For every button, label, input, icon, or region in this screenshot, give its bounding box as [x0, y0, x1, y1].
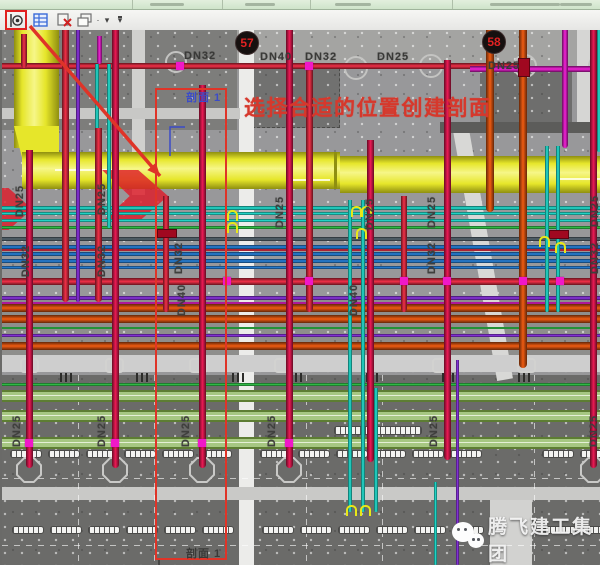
pipe-junction-dot — [443, 277, 451, 285]
grid-dash-vertical — [306, 375, 307, 565]
beam-band — [2, 355, 600, 372]
pipe-size-label: DN32 — [305, 51, 337, 63]
pipe-size-label: DN25 — [274, 190, 286, 234]
hatch-capsule-symbol — [374, 450, 406, 458]
close-hidden-windows-icon[interactable] — [56, 12, 74, 28]
pipe-horizontal-blue — [2, 259, 600, 263]
pipe-horizontal-orange — [2, 304, 600, 312]
pipe-size-label: DN25 — [266, 409, 278, 453]
hatch-capsule-symbol — [12, 526, 44, 534]
pipe-horizontal-violet — [2, 334, 600, 337]
pipe-junction-dot — [400, 277, 408, 285]
valve-symbol — [227, 222, 238, 233]
ribbon-label-blur — [560, 3, 592, 6]
valve-symbol — [555, 242, 566, 253]
ribbon-divider — [452, 0, 453, 9]
ribbon-label-blur — [245, 3, 275, 6]
pipe-junction-dot — [176, 62, 184, 70]
instruction-text: 选择合适的位置创建剖面 — [244, 92, 492, 122]
pipe-vertical-magenta — [562, 30, 568, 148]
pipe-vertical-cyan — [374, 388, 378, 512]
pipe-size-label: DN32 — [426, 236, 438, 280]
insulated-pipe-band — [2, 410, 600, 422]
pipe-vertical-cyan — [556, 146, 560, 312]
pipe-size-label: DN40 — [260, 51, 292, 63]
ribbon-label-blur — [335, 3, 371, 6]
pipe-horizontal-green — [2, 226, 600, 229]
pipe-vertical-orange — [519, 30, 527, 368]
pipe-vertical-red — [21, 34, 27, 68]
pipe-vertical-crimson — [112, 30, 119, 468]
pipe-size-label: DN25 — [14, 179, 26, 223]
pipe-size-label: DN25 — [426, 190, 438, 234]
valve-symbol — [539, 236, 550, 247]
pipe-horizontal-violet — [2, 296, 600, 300]
pipe-size-label: DN32 — [184, 50, 216, 62]
pipe-size-label: DN25 — [588, 409, 600, 453]
pipe-vertical-red — [62, 30, 69, 302]
watermark: 腾飞建工集团 — [452, 512, 600, 565]
ribbon-divider — [222, 0, 223, 9]
hatch-capsule-symbol — [450, 450, 482, 458]
pipe-size-label: DN25 — [96, 409, 108, 453]
pipe-vertical-cyan — [361, 200, 365, 512]
rebar-tick-marks — [518, 373, 530, 382]
ribbon-divider — [132, 0, 133, 9]
pipe-size-label: DN40 — [348, 278, 360, 322]
watermark-text: 腾飞建工集团 — [488, 512, 600, 565]
beam-band — [2, 487, 600, 500]
hatch-capsule-symbol — [298, 450, 330, 458]
ribbon-label-blur — [150, 3, 184, 6]
hatch-capsule-symbol — [542, 450, 574, 458]
duct-reducer-line — [334, 152, 337, 189]
pipe-horizontal-cyan — [2, 219, 600, 222]
hatch-capsule-symbol — [50, 526, 82, 534]
hatch-capsule-symbol — [48, 450, 80, 458]
pipe-vertical-red — [401, 196, 407, 312]
pipe-horizontal-slate — [2, 237, 600, 241]
pipe-junction-dot — [305, 277, 313, 285]
pipe-horizontal-red — [2, 249, 600, 251]
valve-symbol — [360, 505, 371, 516]
toolbar-separator-dot: · — [94, 12, 102, 28]
pipe-junction-dot — [556, 277, 564, 285]
hatch-capsule-symbol — [338, 526, 370, 534]
pipe-tag-badge: 57 — [235, 31, 259, 55]
pipe-size-label: DN25 — [96, 177, 108, 221]
pipe-size-label: DN25 — [11, 409, 23, 453]
pipe-horizontal-red — [2, 278, 600, 285]
ribbon-strip — [0, 0, 600, 10]
pipe-junction-dot — [305, 62, 313, 70]
pipe-junction-dot — [285, 439, 293, 447]
pipe-size-label: DN25 — [364, 192, 376, 236]
pipe-horizontal-blue — [2, 266, 600, 269]
pipe-horizontal-orange — [2, 342, 600, 350]
grid-dash-horizontal — [2, 478, 600, 479]
pipe-vertical-violet — [76, 30, 80, 302]
pipe-junction-dot — [519, 277, 527, 285]
insulated-pipe-band — [2, 437, 600, 449]
pipe-size-label: DN32 — [96, 239, 108, 283]
pipe-junction-dot — [25, 439, 33, 447]
more-tools-icon[interactable]: ▾ — [114, 12, 126, 28]
pipe-vertical-crimson — [367, 140, 374, 462]
pipe-horizontal-green — [2, 327, 600, 329]
properties-palette-icon[interactable] — [31, 12, 49, 28]
valve-symbol — [346, 505, 357, 516]
section-marker-icon[interactable] — [7, 12, 25, 28]
pipe-size-label: DN32 — [20, 239, 32, 283]
pipe-horizontal-cyan — [2, 206, 600, 210]
pipe-junction-dot — [111, 439, 119, 447]
ribbon-divider — [310, 0, 311, 9]
section-label-top[interactable]: 剖面 1 — [186, 89, 221, 105]
pipe-size-label: DN32 — [589, 236, 600, 280]
pipe-horizontal-blue — [2, 252, 600, 256]
grid-dash-vertical — [382, 375, 383, 565]
quick-toolbar: · ▾ ▾ — [0, 10, 600, 31]
application-window: { "toolbar": { "icons": [ {"name": "sect… — [0, 0, 600, 565]
pipe-vertical-cyan — [434, 482, 437, 565]
hatch-capsule-symbol — [376, 526, 408, 534]
pipe-vertical-cyan — [348, 200, 352, 512]
hatch-capsule-symbol — [262, 526, 294, 534]
pipe-horizontal-cyan — [2, 212, 600, 215]
pipe-vertical-crimson — [26, 150, 33, 468]
wechat-icon — [452, 522, 482, 556]
rebar-tick-marks — [232, 373, 244, 382]
pipe-vertical-cyan — [545, 146, 549, 312]
section-box-annotation[interactable] — [155, 88, 227, 560]
valve-symbol — [227, 210, 238, 221]
ribbon-label-blur — [490, 3, 560, 6]
pipe-tag-badge: 58 — [482, 30, 506, 54]
pipe-horizontal-orange — [2, 315, 600, 323]
hatch-capsule-symbol — [124, 450, 156, 458]
section-label-bottom[interactable]: 剖面 1 — [186, 545, 221, 561]
hatch-capsule-symbol — [88, 526, 120, 534]
pipe-size-label: DN25 — [428, 409, 440, 453]
column-strip — [577, 30, 590, 130]
grid-dash-vertical — [78, 375, 79, 565]
hatch-capsule-symbol — [414, 526, 446, 534]
pipe-size-label: DN25 — [377, 51, 409, 63]
pipe-flange — [549, 230, 569, 239]
cascade-windows-icon[interactable] — [76, 12, 94, 28]
pipe-size-label: DN25 — [488, 60, 520, 72]
pipe-vertical-magenta — [97, 36, 102, 64]
pipe-horizontal-green — [2, 383, 600, 386]
rebar-tick-marks — [60, 373, 72, 382]
hatch-capsule-symbol — [126, 526, 158, 534]
duct-horizontal — [340, 156, 600, 193]
pipe-size-label: DN25 — [589, 189, 600, 233]
insulated-pipe-band — [2, 390, 600, 402]
hatch-capsule-symbol — [300, 526, 332, 534]
chevron-down-icon[interactable]: ▾ — [102, 12, 112, 28]
rebar-tick-marks — [136, 373, 148, 382]
